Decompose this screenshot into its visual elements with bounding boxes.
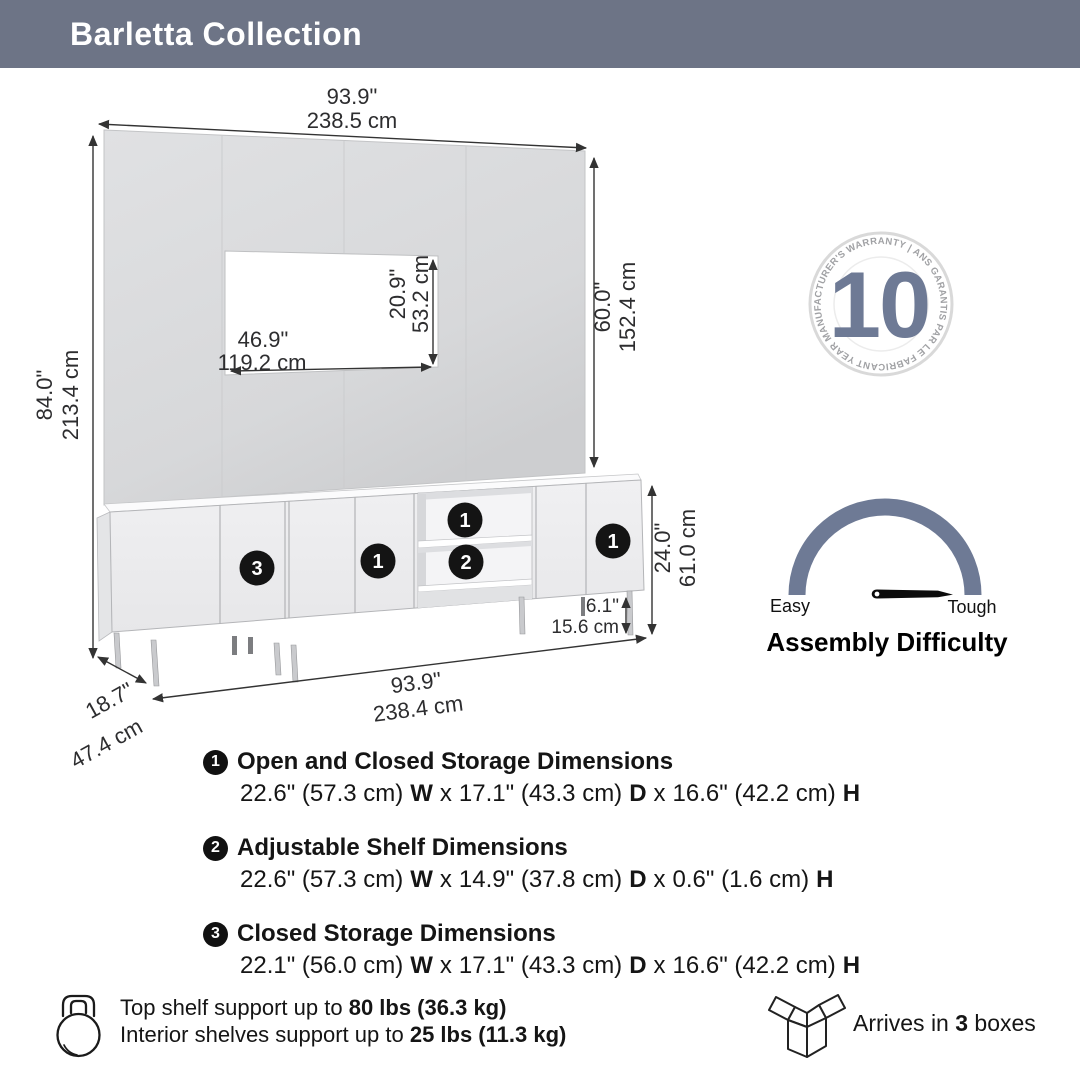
support-line1-text: Top shelf support up to bbox=[120, 995, 349, 1020]
w-value: 22.1" (56.0 cm) bbox=[240, 952, 403, 979]
leg bbox=[274, 643, 281, 675]
dim-tv-width-cm: 119.2 cm bbox=[218, 350, 307, 375]
badge-3-number: 3 bbox=[251, 558, 262, 580]
w-label: W bbox=[410, 866, 433, 893]
support-line2-text: Interior shelves support up to bbox=[120, 1022, 410, 1047]
leg bbox=[519, 597, 525, 634]
shipping-prefix: Arrives in bbox=[853, 1010, 955, 1036]
d-value: 14.9" (37.8 cm) bbox=[459, 866, 622, 893]
d-label: D bbox=[629, 780, 646, 807]
callout-open-closed-storage: 1 Open and Closed Storage Dimensions 22.… bbox=[203, 748, 867, 808]
h-label: H bbox=[843, 952, 860, 979]
dim-depth-cm: 47.4 cm bbox=[66, 714, 147, 774]
h-value: 16.6" (42.2 cm) bbox=[673, 780, 836, 807]
dim-leg-height-in: 6.1" bbox=[586, 596, 619, 617]
header-bar: Barletta Collection bbox=[0, 0, 1080, 68]
callout-title: Closed Storage Dimensions bbox=[237, 920, 556, 948]
dim-panel-width-in: 93.9" bbox=[327, 84, 378, 109]
badge-1-number: 1 bbox=[459, 510, 470, 532]
w-value: 22.6" (57.3 cm) bbox=[240, 780, 403, 807]
callout-dimensions: 22.1" (56.0 cm)Wx17.1" (43.3 cm)Dx16.6" … bbox=[240, 952, 867, 980]
w-label: W bbox=[410, 780, 433, 807]
callout-dimensions: 22.6" (57.3 cm)Wx17.1" (43.3 cm)Dx16.6" … bbox=[240, 780, 867, 808]
callout-list: 1 Open and Closed Storage Dimensions 22.… bbox=[203, 748, 867, 1006]
callout-badge-2: 2 bbox=[203, 836, 228, 861]
dim-cabinet-height-in: 24.0" bbox=[650, 523, 675, 574]
callout-adjustable-shelf: 2 Adjustable Shelf Dimensions 22.6" (57.… bbox=[203, 834, 867, 894]
support-line1-value: 80 lbs (36.3 kg) bbox=[349, 995, 507, 1020]
leg bbox=[114, 633, 121, 668]
h-value: 16.6" (42.2 cm) bbox=[673, 952, 836, 979]
infographic-page: Barletta Collection bbox=[0, 0, 1080, 1080]
dim-panel-height-in: 60.0" bbox=[590, 282, 615, 333]
shipping-note: Arrives in 3 boxes bbox=[853, 1010, 1036, 1037]
warranty-years: 10 bbox=[829, 252, 930, 357]
gauge-needle bbox=[872, 590, 953, 599]
sep: x bbox=[654, 952, 666, 979]
gauge-arc bbox=[797, 507, 973, 595]
assembly-gauge: Easy Tough Assembly Difficulty bbox=[766, 507, 1008, 657]
dim-tv-height-in: 20.9" bbox=[385, 269, 410, 320]
dim-leg-height-cm: 15.6 cm bbox=[551, 617, 619, 638]
top-shelf-support-line: Top shelf support up to 80 lbs (36.3 kg) bbox=[120, 994, 566, 1021]
leg bbox=[291, 645, 298, 682]
badge-1-number: 1 bbox=[372, 551, 383, 573]
d-value: 17.1" (43.3 cm) bbox=[459, 952, 622, 979]
support-line2-value: 25 lbs (11.3 kg) bbox=[410, 1022, 567, 1047]
gauge-title: Assembly Difficulty bbox=[766, 627, 1008, 657]
h-value: 0.6" (1.6 cm) bbox=[673, 866, 810, 893]
gauge-easy-label: Easy bbox=[770, 596, 810, 616]
kettlebell-handle-inner bbox=[71, 1001, 86, 1013]
interior-shelf-support-line: Interior shelves support up to 25 lbs (1… bbox=[120, 1021, 566, 1048]
gauge-needle-pivot bbox=[875, 592, 880, 597]
dim-panel-height-cm: 152.4 cm bbox=[615, 262, 640, 353]
w-value: 22.6" (57.3 cm) bbox=[240, 866, 403, 893]
d-value: 17.1" (43.3 cm) bbox=[459, 780, 622, 807]
sep: x bbox=[654, 780, 666, 807]
leg-back bbox=[232, 636, 237, 655]
leg-back bbox=[581, 597, 585, 616]
shipping-suffix: boxes bbox=[968, 1010, 1036, 1036]
page-title: Barletta Collection bbox=[70, 16, 362, 53]
shipping-box-count: 3 bbox=[955, 1010, 968, 1036]
sep: x bbox=[654, 866, 666, 893]
badge-1-number: 1 bbox=[607, 531, 618, 553]
kettlebell-icon bbox=[58, 996, 100, 1056]
dim-cabinet-height-cm: 61.0 cm bbox=[675, 509, 700, 587]
dim-tv-height-cm: 53.2 cm bbox=[408, 255, 433, 333]
callout-badge-1: 1 bbox=[203, 750, 228, 775]
dim-total-height-in: 84.0" bbox=[32, 370, 57, 421]
d-label: D bbox=[629, 952, 646, 979]
leg-back bbox=[248, 637, 253, 654]
leg bbox=[151, 640, 159, 686]
callout-closed-storage: 3 Closed Storage Dimensions 22.1" (56.0 … bbox=[203, 920, 867, 980]
h-label: H bbox=[843, 780, 860, 807]
h-label: H bbox=[816, 866, 833, 893]
box-face-left bbox=[788, 1020, 807, 1057]
sep: x bbox=[440, 780, 452, 807]
cabinet-side-face bbox=[97, 512, 112, 641]
kettlebell-body bbox=[58, 1014, 100, 1056]
sep: x bbox=[440, 866, 452, 893]
d-label: D bbox=[629, 866, 646, 893]
dim-panel-width-cm: 238.5 cm bbox=[307, 108, 398, 133]
dim-tv-width-in: 46.9" bbox=[238, 327, 289, 352]
callout-title: Open and Closed Storage Dimensions bbox=[237, 748, 673, 776]
callout-dimensions: 22.6" (57.3 cm)Wx14.9" (37.8 cm)Dx0.6" (… bbox=[240, 866, 867, 894]
dim-total-height-cm: 213.4 cm bbox=[58, 350, 83, 441]
weight-support-note: Top shelf support up to 80 lbs (36.3 kg)… bbox=[120, 994, 566, 1048]
callout-title: Adjustable Shelf Dimensions bbox=[237, 834, 568, 862]
w-label: W bbox=[410, 952, 433, 979]
callout-badge-3: 3 bbox=[203, 922, 228, 947]
leg bbox=[627, 591, 633, 635]
badge-2-number: 2 bbox=[460, 552, 471, 574]
sep: x bbox=[440, 952, 452, 979]
dim-cabinet-width-cm: 238.4 cm bbox=[372, 690, 465, 726]
gauge-tough-label: Tough bbox=[947, 597, 996, 617]
